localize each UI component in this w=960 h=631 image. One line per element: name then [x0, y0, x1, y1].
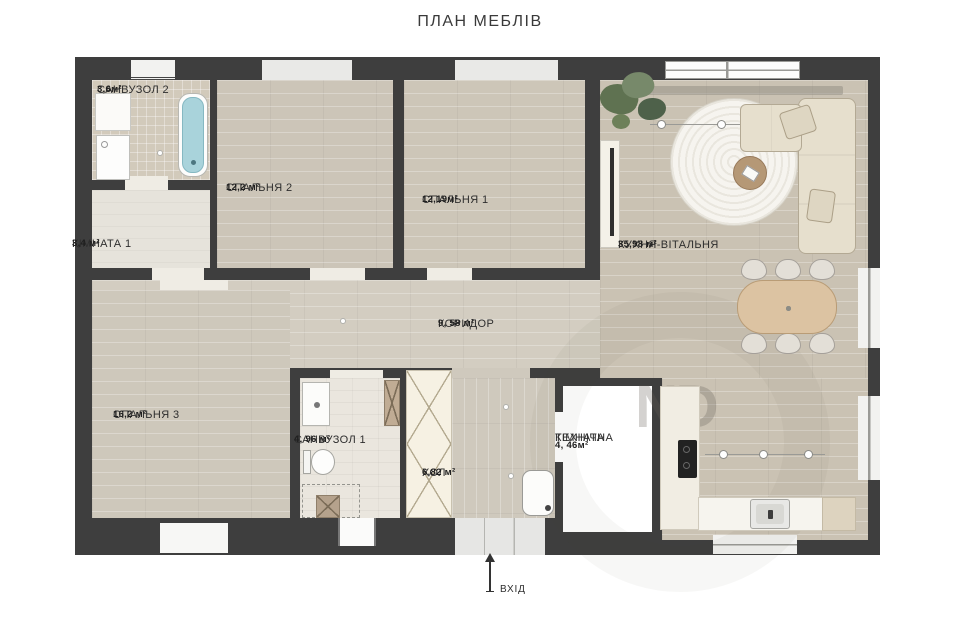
- bathtub: [178, 93, 208, 177]
- cooktop: [678, 440, 697, 478]
- ceiling-light-icon: [503, 404, 509, 410]
- table-centerpiece: [768, 304, 808, 312]
- window-spalnya2: [262, 60, 352, 80]
- door-sanvuzol2: [125, 176, 168, 190]
- kitchen-mat: [713, 360, 753, 398]
- entrance-arrow-base: [486, 591, 494, 592]
- lamp-icon: [657, 120, 666, 129]
- plant: [600, 72, 676, 144]
- kitchen-cabinet: [822, 497, 856, 531]
- shower-drain-tile: [316, 495, 340, 518]
- dining-table: [737, 280, 837, 334]
- wardrobe: [406, 370, 452, 518]
- lamp-icon: [759, 450, 768, 459]
- window-spalnya1: [455, 60, 558, 80]
- dining-chair: [741, 259, 767, 280]
- door-sanvuzol1-bottom: [338, 518, 376, 546]
- bathtub-drain: [191, 160, 196, 165]
- boiler-valve: [545, 505, 551, 511]
- toilet-tank: [303, 450, 311, 474]
- plant-leaf: [612, 114, 630, 129]
- ceiling-light-icon: [157, 150, 163, 156]
- pillow: [806, 188, 836, 223]
- faucet-icon: [314, 402, 320, 408]
- floor-plan-page: { "title": "ПЛАН МЕБЛІВ", "rooms": { "sa…: [0, 0, 960, 631]
- window-living-top: [665, 61, 800, 79]
- dining-chair: [775, 333, 801, 354]
- bathroom-cabinet: [95, 93, 131, 131]
- toilet: [311, 449, 335, 475]
- faucet-icon: [768, 510, 773, 519]
- tv: [610, 148, 614, 236]
- window-spalnya3: [160, 523, 228, 553]
- dining-chair: [741, 333, 767, 354]
- door-spalnya3: [160, 280, 228, 290]
- door-spalnya1: [427, 268, 472, 280]
- storage-cabinet: [384, 380, 400, 426]
- room-floor-spalnya2: [217, 80, 393, 268]
- window-sanvuzol2: [131, 60, 175, 80]
- bathroom-sink: [302, 382, 330, 426]
- window-living-right-upper: [858, 268, 880, 348]
- window-living-right-lower: [858, 396, 880, 480]
- room-floor-kimnata1: [92, 190, 210, 268]
- dining-chair: [809, 333, 835, 354]
- room-floor-spalnya3: [92, 290, 290, 518]
- door-kimnata1: [152, 268, 204, 280]
- dining-chair: [775, 259, 801, 280]
- opening-hall: [452, 368, 530, 378]
- ceiling-light-icon: [508, 473, 514, 479]
- entrance-label: ВХІД: [500, 584, 526, 595]
- door-sanvuzol1: [330, 370, 383, 378]
- lamp-icon: [804, 450, 813, 459]
- page-title: ПЛАН МЕБЛІВ: [0, 13, 960, 31]
- entrance-door: [455, 518, 545, 555]
- washer-knob: [101, 141, 108, 148]
- boiler: [522, 470, 554, 516]
- lamp-icon: [717, 120, 726, 129]
- washing-machine: [96, 135, 130, 180]
- coffee-table: [733, 156, 767, 190]
- entrance-arrow-line: [489, 560, 491, 592]
- lamp-icon: [719, 450, 728, 459]
- ceiling-light-icon: [340, 318, 346, 324]
- room-floor-spalnya1: [404, 80, 585, 268]
- plant-leaf: [638, 98, 666, 120]
- floor-plan: ND: [75, 57, 880, 555]
- door-spalnya2: [310, 268, 365, 280]
- dining-chair: [809, 259, 835, 280]
- kitchen-sink: [750, 499, 790, 529]
- book: [741, 165, 760, 182]
